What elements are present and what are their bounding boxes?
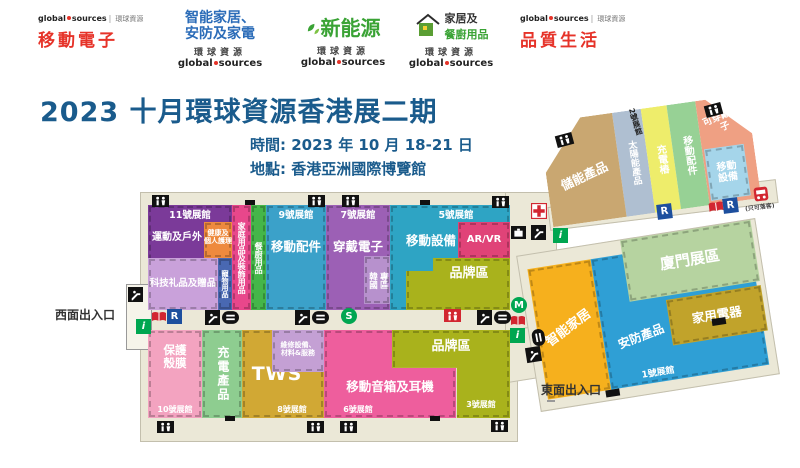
zone-label: 安防產品 bbox=[605, 318, 677, 357]
house-icon bbox=[414, 13, 442, 39]
restroom-icon bbox=[444, 309, 461, 322]
hall5-header: 5號展館 bbox=[412, 207, 500, 221]
zone-label: 儲能產品 bbox=[549, 155, 620, 198]
logo-lifestyle: globalsources|環球資源 品質生活 bbox=[520, 14, 625, 51]
info-icon: i bbox=[510, 328, 525, 343]
gs-chinese: 環球資源 bbox=[293, 44, 393, 57]
service-kiosk-icon bbox=[312, 311, 329, 324]
media-book-icon bbox=[151, 310, 167, 323]
gs-dot-icon bbox=[445, 61, 449, 65]
logo-new-energy: 新能源 環球資源 globalsources bbox=[293, 12, 393, 68]
hall-10-protective-cases: 保護殼膜 10號展館 bbox=[148, 330, 202, 418]
door-marker bbox=[245, 200, 255, 205]
zone-label: 移動設備 bbox=[715, 159, 740, 185]
shuttle-icon: S bbox=[341, 308, 357, 324]
global-sources-wordmark: globalsources bbox=[293, 57, 393, 68]
gs-dot-icon bbox=[549, 16, 553, 20]
meeting-point-icon: M bbox=[511, 297, 527, 313]
registration-icon: R bbox=[722, 197, 739, 214]
zone-label: 充電樁 bbox=[653, 143, 669, 174]
logo-home-line1: 家居及 bbox=[445, 10, 489, 26]
event-venue: 地點: 香港亞洲國際博覽館 bbox=[250, 158, 426, 179]
zone-sports-outdoor: 運動及戶外 bbox=[148, 232, 206, 244]
door-marker bbox=[430, 416, 440, 421]
hall6-footer: 6號展館 bbox=[328, 405, 388, 414]
zone-wearable-electronics: 穿戴電子 bbox=[326, 240, 390, 254]
escalator-icon bbox=[205, 310, 220, 325]
logo-home-kitchen: 家居及 餐廚用品 環球資源 globalsources bbox=[405, 10, 497, 69]
logo-mobile-electronics: globalsources|環球資源 移動電子 bbox=[38, 14, 143, 51]
luggage-icon bbox=[511, 226, 526, 239]
hall7-header: 7號展館 bbox=[326, 207, 390, 221]
logo-lifestyle-label: 品質生活 bbox=[520, 26, 625, 51]
restroom-icon bbox=[152, 195, 169, 207]
logo-energy-label: 新能源 bbox=[293, 12, 393, 41]
zone-ar-vr: AR/VR bbox=[458, 222, 510, 258]
restroom-icon bbox=[308, 195, 325, 207]
hall10-footer: 10號展館 bbox=[148, 405, 202, 414]
global-sources-wordmark: globalsources|環球資源 bbox=[520, 14, 625, 24]
global-sources-wordmark: globalsources|環球資源 bbox=[38, 14, 143, 24]
floorplan-page: globalsources|環球資源 移動電子 智能家居、 安防及家電 環球資源… bbox=[0, 0, 800, 468]
hall11-header: 11號展館 bbox=[148, 207, 232, 221]
info-icon: i bbox=[553, 228, 568, 243]
service-kiosk-icon bbox=[222, 311, 239, 324]
zone-repair-services: 維修設備、材料&服務 bbox=[272, 330, 324, 372]
global-sources-wordmark: globalsources bbox=[405, 58, 497, 69]
door-marker bbox=[420, 200, 430, 205]
hall1-footer: 1號展館 bbox=[623, 363, 694, 384]
info-icon: i bbox=[136, 319, 151, 334]
east-entrance-label: 東面出入口 bbox=[541, 381, 601, 398]
gs-chinese: 環球資源 bbox=[597, 15, 625, 23]
restroom-icon bbox=[340, 421, 357, 433]
logo-smart-home: 智能家居、 安防及家電 環球資源 globalsources bbox=[168, 10, 272, 69]
logo-smart-line1: 智能家居、 bbox=[168, 10, 272, 26]
gs-chinese: 環球資源 bbox=[405, 45, 497, 58]
gs-chinese: 環球資源 bbox=[168, 45, 272, 58]
service-kiosk-icon bbox=[494, 311, 511, 324]
west-entrance-label: 西面出入口 bbox=[55, 306, 115, 323]
zone-tech-gifts: 科技礼品及贈品 bbox=[148, 258, 218, 310]
page-title: 2023 十月環球資源香港展二期 bbox=[40, 90, 438, 129]
escalator-icon bbox=[477, 310, 492, 325]
global-sources-wordmark: globalsources bbox=[168, 58, 272, 69]
gs-word1: global bbox=[38, 14, 66, 23]
zone-household-decor: 家庭用品及裝飾用品 bbox=[232, 205, 251, 310]
logo-home-line2: 餐廚用品 bbox=[445, 26, 489, 42]
zone-pet-supplies: 寵物用品 bbox=[218, 258, 232, 310]
zone-energy-storage: 儲能產品 bbox=[539, 113, 627, 227]
zone-kitchenware: 餐廚用品 bbox=[251, 205, 266, 310]
east-entrance-dash bbox=[547, 400, 555, 402]
gs-word2: sources bbox=[72, 14, 107, 23]
zone-korea-pavilion: 韓國 專區 bbox=[364, 256, 390, 304]
zone-label: 移動配件 bbox=[680, 135, 697, 176]
escalator-icon bbox=[531, 225, 546, 240]
registration-icon: R bbox=[167, 309, 182, 324]
zone-mobile-devices-h2: 移動設備 bbox=[704, 144, 751, 201]
escalator-icon bbox=[525, 346, 542, 363]
event-time: 時間: 2023 年 10 月 18-21 日 bbox=[250, 134, 473, 155]
zone-health-personal-care: 健康及個人護理 bbox=[204, 222, 232, 258]
service-kiosk-icon bbox=[531, 328, 547, 347]
restroom-icon bbox=[492, 196, 509, 208]
restroom-icon bbox=[342, 195, 359, 207]
gs-dot-icon bbox=[214, 61, 218, 65]
registration-icon: R bbox=[656, 203, 673, 220]
zone-label: 廈門展區 bbox=[659, 248, 721, 274]
gs-chinese: 環球資源 bbox=[115, 15, 143, 23]
restroom-icon bbox=[491, 420, 508, 432]
door-marker bbox=[605, 388, 620, 397]
restroom-icon bbox=[307, 421, 324, 433]
gs-dot-icon bbox=[67, 16, 71, 20]
hall9-header: 9號展館 bbox=[266, 207, 326, 221]
hall3-footer: 3號展館 bbox=[456, 400, 506, 409]
leaf-icon bbox=[306, 22, 321, 37]
gs-dot-icon bbox=[337, 60, 341, 64]
logo-smart-line2: 安防及家電 bbox=[168, 26, 272, 42]
door-marker bbox=[225, 416, 235, 421]
restroom-icon bbox=[157, 421, 174, 433]
zone-label: 智能家居 bbox=[534, 300, 604, 358]
media-book-icon bbox=[510, 314, 526, 327]
escalator-icon bbox=[295, 310, 310, 325]
escalator-icon bbox=[128, 287, 143, 302]
zone-mobile-accessories: 移動配件 bbox=[266, 240, 326, 254]
hall8-footer: 8號展館 bbox=[262, 405, 322, 414]
zone-charging-products: 充電產品 bbox=[202, 330, 242, 418]
first-aid-icon bbox=[531, 203, 547, 219]
logo-mobile-label: 移動電子 bbox=[38, 26, 143, 51]
